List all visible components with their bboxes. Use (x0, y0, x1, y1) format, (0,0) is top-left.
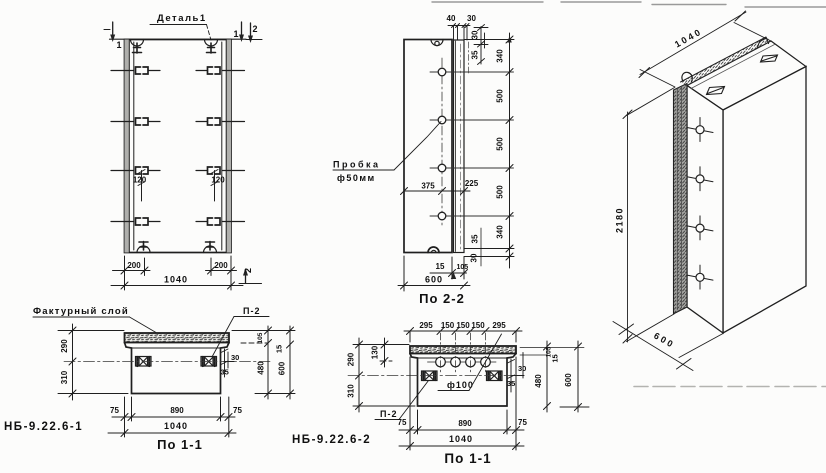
svg-text:15: 15 (436, 262, 445, 271)
svg-text:Пробка: Пробка (333, 160, 381, 170)
svg-text:150: 150 (456, 321, 470, 330)
svg-text:П-2: П-2 (243, 306, 260, 316)
svg-text:35: 35 (221, 368, 229, 377)
svg-text:310: 310 (347, 384, 356, 398)
svg-text:200: 200 (127, 261, 141, 270)
svg-text:340: 340 (496, 49, 505, 63)
svg-text:295: 295 (419, 321, 433, 330)
svg-text:По 1-1: По 1-1 (444, 451, 491, 466)
svg-text:480: 480 (257, 361, 266, 375)
svg-text:1: 1 (117, 40, 122, 50)
svg-text:15: 15 (551, 354, 560, 362)
svg-text:1040: 1040 (164, 275, 188, 285)
svg-text:105: 105 (257, 332, 264, 343)
svg-text:Фактурный слой: Фактурный слой (33, 306, 129, 317)
svg-text:150: 150 (441, 321, 455, 330)
svg-text:ф50мм: ф50мм (337, 173, 376, 183)
svg-text:30: 30 (518, 364, 526, 373)
svg-text:75: 75 (110, 406, 119, 415)
svg-text:По 1-1: По 1-1 (157, 437, 203, 452)
svg-text:890: 890 (458, 419, 472, 428)
svg-text:290: 290 (60, 339, 69, 353)
svg-text:600: 600 (278, 361, 287, 375)
svg-text:295: 295 (492, 321, 506, 330)
svg-text:30: 30 (231, 353, 239, 362)
svg-text:600: 600 (425, 275, 443, 285)
svg-text:500: 500 (496, 137, 505, 151)
svg-text:120: 120 (211, 176, 225, 185)
svg-text:30: 30 (471, 30, 480, 39)
svg-text:П-2: П-2 (380, 409, 397, 419)
svg-text:1040: 1040 (164, 421, 188, 431)
svg-text:НБ-9.22.6-1: НБ-9.22.6-1 (4, 421, 83, 433)
svg-text:500: 500 (496, 185, 505, 199)
svg-text:1040: 1040 (449, 434, 473, 444)
svg-text:290: 290 (347, 352, 356, 366)
svg-text:600: 600 (564, 373, 573, 387)
svg-text:15: 15 (275, 345, 284, 353)
svg-text:890: 890 (170, 406, 184, 415)
svg-text:75: 75 (398, 418, 407, 427)
svg-text:Деталь1: Деталь1 (157, 13, 207, 24)
svg-text:2: 2 (243, 268, 253, 273)
svg-text:35: 35 (471, 234, 480, 243)
svg-text:120: 120 (133, 176, 147, 185)
svg-text:340: 340 (496, 225, 505, 239)
svg-text:75: 75 (518, 418, 527, 427)
svg-text:75: 75 (233, 406, 242, 415)
svg-text:310: 310 (60, 370, 69, 384)
svg-text:200: 200 (214, 261, 228, 270)
svg-text:130: 130 (371, 345, 380, 359)
svg-text:40: 40 (447, 14, 456, 23)
svg-text:480: 480 (534, 374, 543, 388)
svg-text:225: 225 (465, 179, 479, 188)
svg-text:375: 375 (421, 182, 435, 191)
svg-text:1: 1 (234, 29, 239, 39)
svg-text:30: 30 (467, 14, 476, 23)
svg-text:150: 150 (471, 321, 485, 330)
svg-text:35: 35 (507, 379, 515, 388)
svg-text:2: 2 (253, 24, 258, 34)
svg-text:2180: 2180 (615, 207, 625, 233)
svg-text:30: 30 (470, 253, 479, 262)
svg-text:По 2-2: По 2-2 (419, 291, 465, 306)
svg-text:НБ-9.22.6-2: НБ-9.22.6-2 (292, 434, 371, 446)
svg-text:35: 35 (471, 50, 480, 59)
svg-text:500: 500 (496, 89, 505, 103)
